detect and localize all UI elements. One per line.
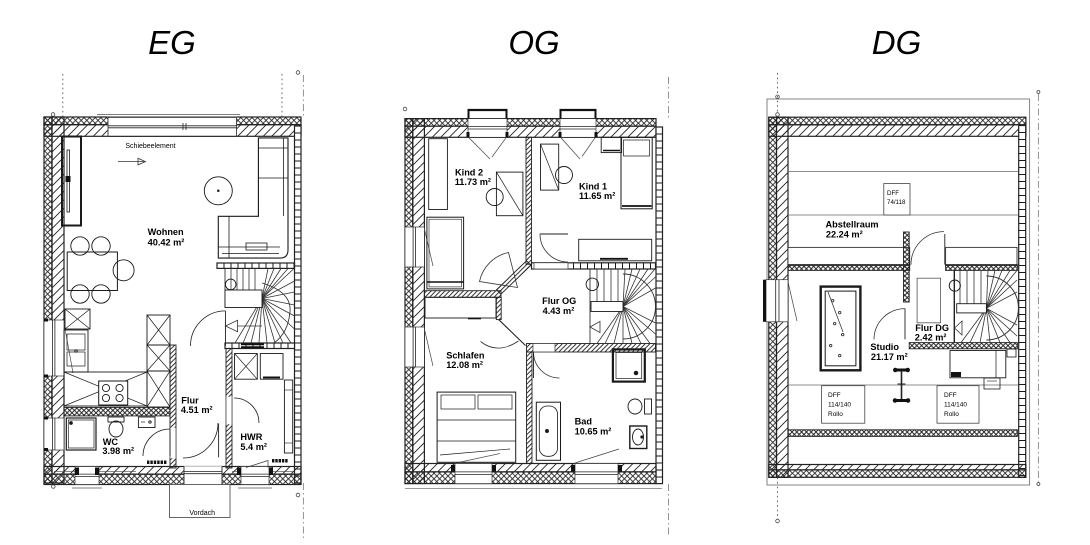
svg-text:Wohnen: Wohnen [148,227,184,237]
svg-text:2.42 m²: 2.42 m² [915,332,947,342]
svg-text:Flur OG: Flur OG [542,296,576,306]
svg-text:DFF: DFF [828,392,841,399]
svg-text:Abstellraum: Abstellraum [826,220,879,230]
svg-text:Vordach: Vordach [189,510,215,517]
svg-text:OG: OG [508,24,559,61]
svg-text:Schiebeelement: Schiebeelement [125,143,175,150]
svg-text:5.4 m²: 5.4 m² [240,442,267,452]
svg-text:DFF: DFF [944,392,957,399]
svg-text:11.73 m²: 11.73 m² [455,177,491,187]
svg-text:DG: DG [872,24,922,61]
svg-text:Kind 2: Kind 2 [455,168,483,178]
svg-text:4.43 m²: 4.43 m² [543,306,575,316]
svg-text:Bad: Bad [575,416,592,426]
svg-text:114/140: 114/140 [828,402,851,409]
svg-text:11.65 m²: 11.65 m² [579,191,615,201]
svg-text:4.51 m²: 4.51 m² [181,405,213,415]
svg-text:Flur DG: Flur DG [915,323,949,333]
svg-text:12.08 m²: 12.08 m² [446,360,483,370]
svg-text:114/140: 114/140 [944,402,967,409]
svg-text:Rollo: Rollo [828,411,843,418]
svg-text:10.65 m²: 10.65 m² [575,427,612,437]
svg-text:Schlafen: Schlafen [446,351,485,361]
svg-text:22.24 m²: 22.24 m² [826,229,863,239]
svg-text:HWR: HWR [240,432,262,442]
svg-text:Studio: Studio [870,342,899,352]
svg-text:EG: EG [148,24,196,61]
svg-text:Kind 1: Kind 1 [579,182,607,192]
svg-text:40.42 m²: 40.42 m² [148,237,185,247]
svg-text:74/118: 74/118 [887,199,906,206]
svg-text:DFF: DFF [887,190,899,197]
svg-text:Rollo: Rollo [944,411,959,418]
svg-text:3.98 m²: 3.98 m² [102,446,134,456]
svg-text:21.17 m²: 21.17 m² [871,352,908,362]
svg-text:Flur: Flur [181,396,199,406]
